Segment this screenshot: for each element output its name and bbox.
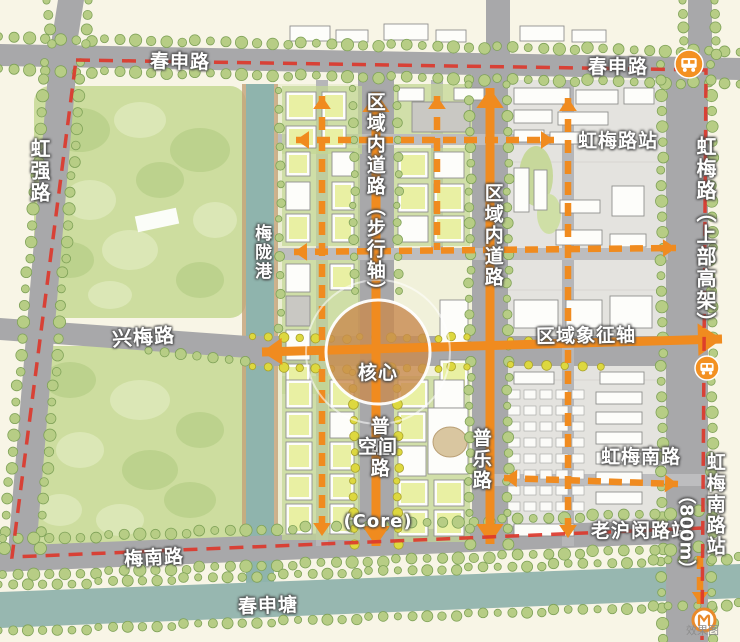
label-hongqiang-road: 虹强路 xyxy=(26,138,52,204)
label-core-space: 核心 空间 (Core) xyxy=(326,312,430,582)
label-station-chunshen-hongmei: 春申路 虹梅路站 xyxy=(562,6,674,204)
label-chunshen-road: 春申路 xyxy=(150,49,210,75)
label-meilong-port: 梅陇港 xyxy=(250,224,272,281)
label-chunshen-canal: 春申塘 xyxy=(238,593,299,620)
station-top-line1: 春申路 xyxy=(562,55,674,80)
label-distance-800m: （800m） xyxy=(674,486,697,578)
label-meinan-road: 梅南路 xyxy=(123,544,184,572)
bus-icon xyxy=(675,50,703,78)
label-pule-road: 普乐路 xyxy=(468,428,493,491)
label-hongmei-road-elevated: 虹梅路（上部高架） xyxy=(692,136,718,334)
core-line3: (Core) xyxy=(326,510,430,533)
watermark-text: 效果图 xyxy=(686,624,719,638)
label-xingmei-road: 兴梅路 xyxy=(111,322,176,352)
masterplan-map: 春申路 虹强路 兴梅路 梅陇港 区域内道路（步行轴） 区域内道路 区域象征轴 普… xyxy=(0,0,740,642)
bus-icon xyxy=(695,356,719,380)
core-line1: 核心 xyxy=(326,361,430,386)
station-mid-line1: 虹梅南路 xyxy=(576,445,706,470)
station-top-line2: 虹梅路站 xyxy=(562,129,674,154)
label-regional-symbol-axis: 区域象征轴 xyxy=(536,323,636,349)
label-station-hongmeinan: 虹梅南路站 xyxy=(702,452,727,557)
label-internal-road: 区域内道路 xyxy=(480,183,505,288)
core-line2: 空间 xyxy=(326,435,430,460)
label-internal-road-pedestrian-axis: 区域内道路（步行轴） xyxy=(362,92,387,302)
